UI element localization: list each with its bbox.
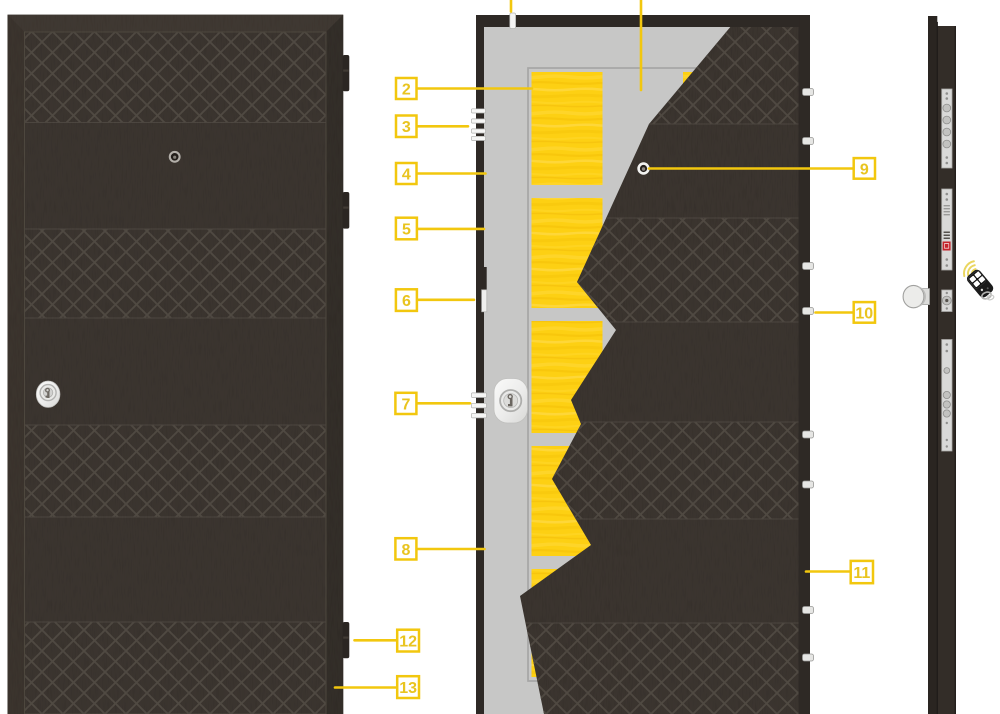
svg-text:11: 11 [853,565,870,582]
svg-text:8: 8 [401,542,410,559]
svg-text:4: 4 [402,167,411,184]
svg-text:7: 7 [401,396,410,413]
svg-text:6: 6 [402,293,411,310]
svg-text:5: 5 [402,222,411,239]
svg-text:12: 12 [399,634,417,651]
svg-text:10: 10 [855,305,873,322]
svg-text:2: 2 [402,82,411,99]
svg-text:13: 13 [399,680,417,697]
svg-text:9: 9 [860,161,869,178]
svg-text:3: 3 [402,119,411,136]
